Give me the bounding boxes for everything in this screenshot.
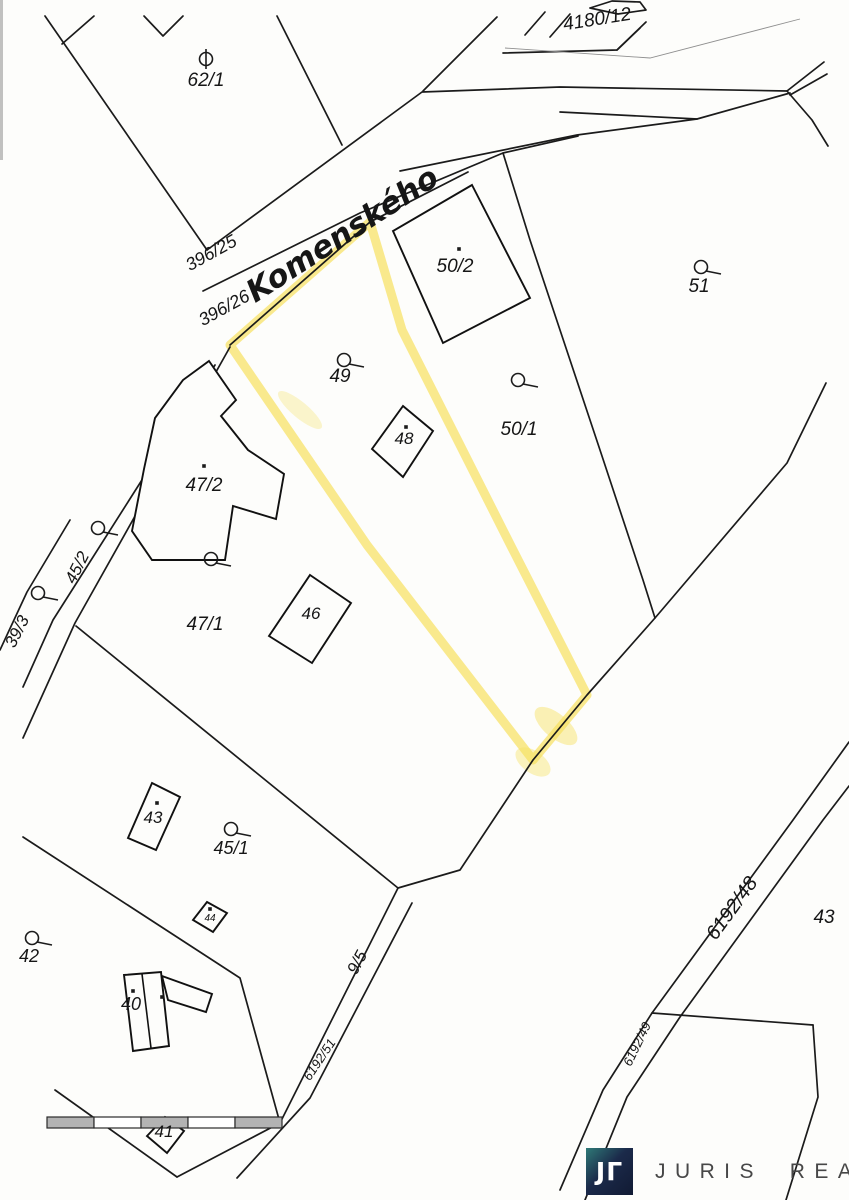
parcel-label-45-2: 45/2 (61, 548, 93, 587)
highlighted-parcel-outline (230, 222, 587, 782)
garden-symbol (512, 374, 539, 388)
garden-symbol (26, 932, 53, 946)
parcel-label-50-1: 50/1 (501, 419, 538, 440)
garden-symbol (32, 587, 59, 601)
scale-bar-segment (188, 1117, 235, 1128)
parcel-label-43: 43 (144, 808, 163, 827)
garden-symbol (338, 354, 365, 368)
labels-layer: 4180/1262/1396/25396/2650/251494850/147/… (1, 4, 835, 1141)
cadastral-map: 4180/1262/1396/25396/2650/251494850/147/… (0, 0, 849, 1200)
building-dot (131, 989, 135, 993)
juris-real-logo-text: JURIS REAL (655, 1160, 849, 1184)
building-dot (404, 425, 408, 429)
building-dot (202, 464, 206, 468)
orchard-symbol (200, 49, 213, 69)
parcel-label-4180-12: 4180/12 (562, 4, 634, 36)
scale-bar-segment (47, 1117, 94, 1128)
parcel-label-49: 49 (329, 366, 351, 387)
parcel-label-46: 46 (302, 604, 321, 623)
parcel-label-51: 51 (688, 276, 709, 297)
parcel-label-6192-49: 6192/49 (620, 1020, 654, 1069)
parcel-label-9-5: 9/5 (343, 947, 371, 977)
parcel-label-44: 44 (204, 913, 216, 924)
logo-glyph-j: J (596, 1157, 606, 1186)
scale-bar-segment (94, 1117, 141, 1128)
parcel-label-48: 48 (395, 429, 414, 448)
parcel-label-396-26: 396/26 (195, 285, 254, 330)
parcel-label-47-2: 47/2 (186, 475, 223, 496)
parcel-label-50-2: 50/2 (437, 256, 474, 277)
buildings (124, 185, 530, 1153)
building-dot (208, 907, 212, 911)
building-dot (457, 247, 461, 251)
building-dot (160, 995, 164, 999)
garden-symbol (225, 823, 252, 837)
parcel-label-45-1: 45/1 (213, 838, 248, 858)
logo-glyph-gamma: Γ (606, 1157, 623, 1186)
parcel-label-39-3: 39/3 (1, 612, 33, 651)
parcel-label-396-25: 396/25 (182, 230, 241, 275)
scale-bar-segment (235, 1117, 282, 1128)
building-dot (155, 801, 159, 805)
juris-real-logo-mark: JΓ (586, 1148, 633, 1195)
parcel-label-6192-48: 6192/48 (702, 873, 762, 944)
parcel-label-47-1: 47/1 (187, 614, 224, 635)
parcel-label-40: 40 (121, 994, 141, 1014)
building-40-wing (162, 976, 212, 1012)
parcel-label-42: 42 (19, 946, 39, 966)
parcel-label-41: 41 (155, 1122, 174, 1141)
parcel-label-43: 43 (813, 907, 835, 928)
juris-real-logo: JΓ JURIS REAL (586, 1148, 849, 1195)
cadastral-map-page: 4180/1262/1396/25396/2650/251494850/147/… (0, 0, 849, 1200)
parcel-label-62-1: 62/1 (188, 70, 225, 91)
scan-artifacts (0, 0, 800, 160)
garden-symbol (695, 261, 722, 275)
